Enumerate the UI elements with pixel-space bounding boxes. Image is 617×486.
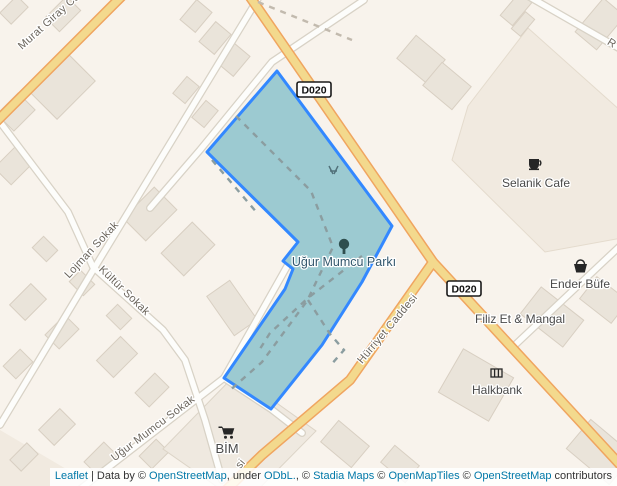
attribution-text: , under (227, 470, 264, 482)
leaflet-link[interactable]: Leaflet (55, 470, 88, 482)
attribution-text: contributors (551, 470, 612, 482)
stadia-maps-link[interactable]: Stadia Maps (313, 470, 374, 482)
d020-shield-east: D020 (447, 281, 481, 296)
d020-shield-north: D020 (297, 82, 331, 97)
park-label: Uğur Mumcu Parkı (292, 255, 396, 269)
map-tiles: Murat Giray Ca Lojman Sokak Kültür Sokak… (0, 0, 617, 486)
attribution-text: | Data by © (88, 470, 149, 482)
poi-label-halkbank: Halkbank (472, 383, 523, 397)
odbl-link[interactable]: ODbL. (264, 470, 296, 482)
openstreetmap-link[interactable]: OpenStreetMap (149, 470, 227, 482)
openmaptiles-link[interactable]: OpenMapTiles (388, 470, 459, 482)
map-canvas[interactable]: Murat Giray Ca Lojman Sokak Kültür Sokak… (0, 0, 617, 486)
svg-text:D020: D020 (451, 284, 476, 296)
openstreetmap-contributors-link[interactable]: OpenStreetMap (474, 470, 552, 482)
attribution-text: , © (296, 470, 313, 482)
attribution-text: © (374, 470, 388, 482)
poi-label-selanik-cafe: Selanik Cafe (502, 176, 570, 190)
svg-text:D020: D020 (301, 85, 326, 97)
poi-label-filiz-et-mangal: Filiz Et & Mangal (475, 312, 565, 326)
attribution-text: © (460, 470, 474, 482)
attribution-bar: Leaflet | Data by © OpenStreetMap, under… (50, 468, 617, 486)
poi-label-bim: BİM (215, 441, 238, 456)
poi-label-ender-bufe: Ender Büfe (550, 277, 610, 291)
